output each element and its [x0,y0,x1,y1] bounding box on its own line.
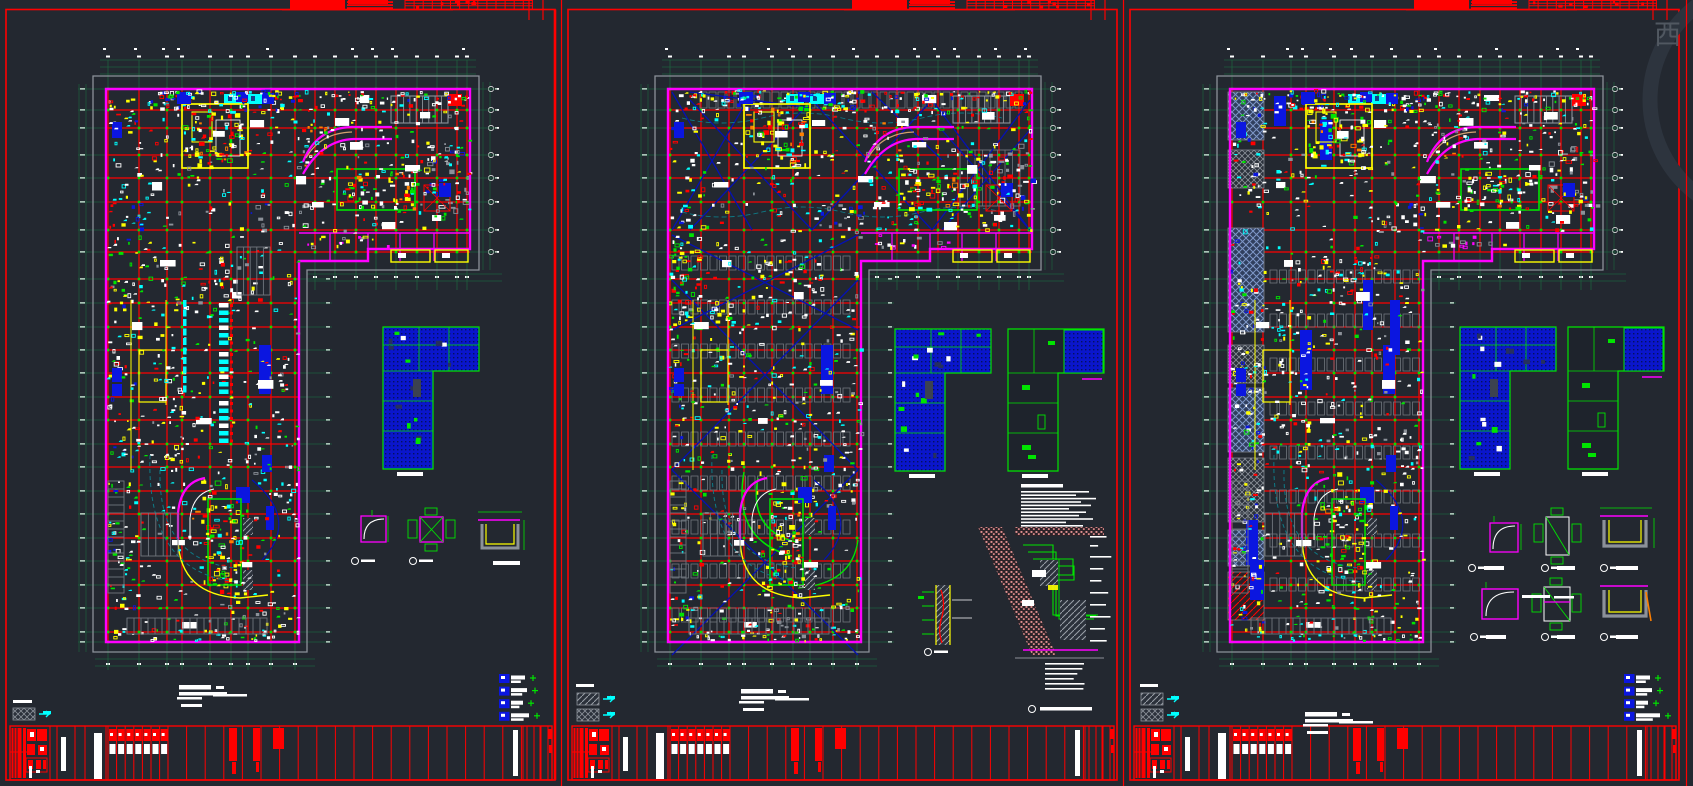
svg-text:西: 西 [1654,20,1681,50]
